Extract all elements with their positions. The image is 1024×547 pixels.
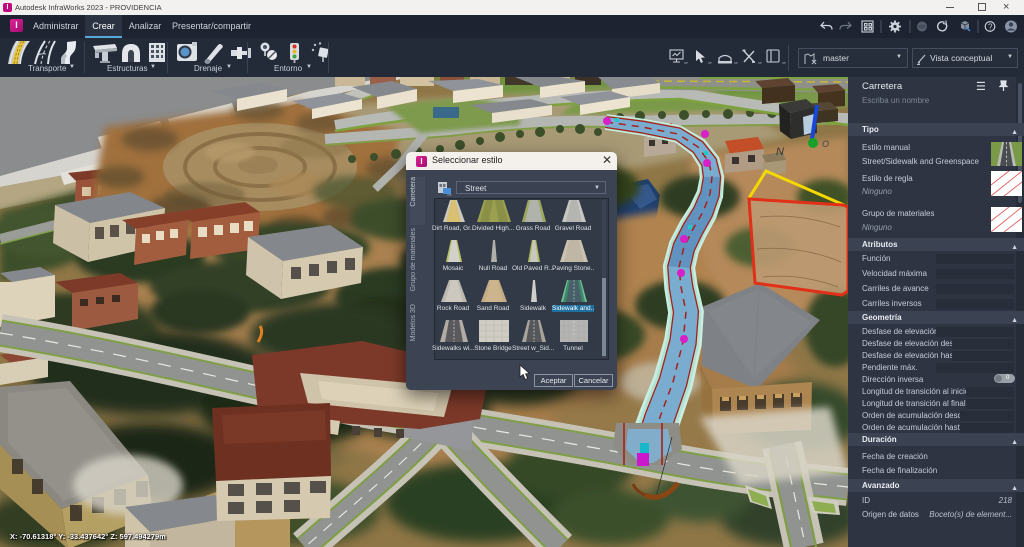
- svg-text:?: ?: [988, 23, 993, 32]
- svg-text:N: N: [776, 146, 784, 158]
- svg-text:O: O: [822, 139, 829, 149]
